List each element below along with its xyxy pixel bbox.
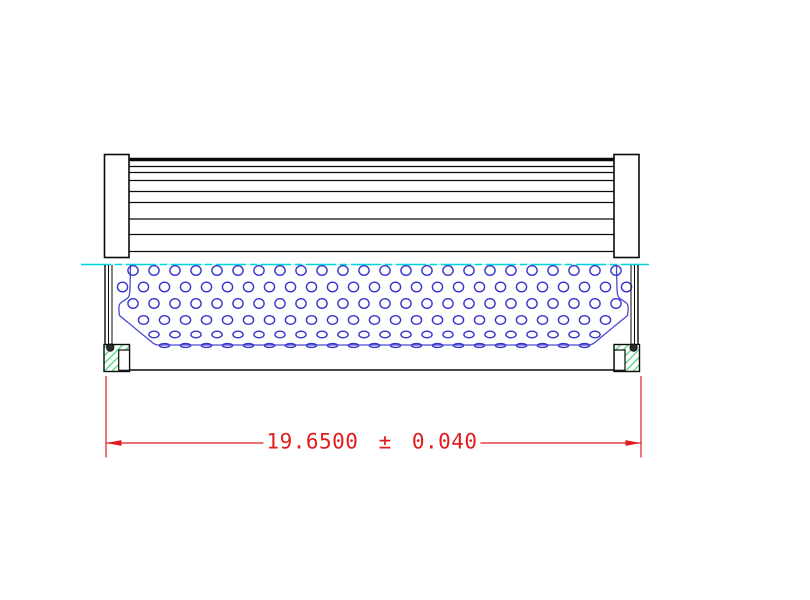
perforation-hole bbox=[149, 331, 159, 338]
perforation-hole bbox=[285, 282, 295, 292]
perforation-hole bbox=[380, 331, 390, 338]
perforation-hole bbox=[359, 266, 369, 276]
perforation-hole bbox=[432, 316, 442, 325]
perforation-hole bbox=[338, 331, 348, 338]
perforation-hole bbox=[411, 282, 421, 292]
perforation-hole bbox=[191, 266, 201, 276]
perforation-hole bbox=[128, 266, 138, 276]
perforation-hole bbox=[317, 266, 327, 276]
perforation-hole bbox=[317, 299, 327, 309]
perforation-hole bbox=[254, 299, 264, 309]
perforation-hole bbox=[569, 299, 579, 309]
filter-element-drawing bbox=[0, 0, 810, 600]
perforation-hole bbox=[170, 331, 180, 338]
perforation-hole bbox=[317, 331, 327, 338]
perforation-hole bbox=[180, 316, 190, 325]
perforation-hole bbox=[212, 266, 222, 276]
perforation-hole bbox=[296, 299, 306, 309]
perforation-hole bbox=[558, 316, 568, 325]
perforation-hole bbox=[590, 299, 600, 309]
perforation-hole bbox=[348, 282, 358, 292]
perforation-hole bbox=[212, 299, 222, 309]
perforation-hole bbox=[191, 331, 201, 338]
perforation-hole bbox=[275, 299, 285, 309]
perforation-hole bbox=[401, 299, 411, 309]
perforation-hole bbox=[621, 282, 631, 292]
perforation-hole bbox=[516, 282, 526, 292]
perforation-hole bbox=[264, 282, 274, 292]
perforation-hole bbox=[390, 316, 400, 325]
perforation-hole bbox=[222, 316, 232, 325]
perforation-hole bbox=[254, 331, 264, 338]
perforation-hole bbox=[579, 282, 589, 292]
perforation-hole bbox=[159, 282, 169, 292]
perforation-hole bbox=[138, 282, 148, 292]
perforation-hole bbox=[422, 299, 432, 309]
perforation-hole bbox=[527, 299, 537, 309]
perforation-hole bbox=[590, 266, 600, 276]
perforation-hole bbox=[443, 299, 453, 309]
perforation-hole bbox=[233, 331, 243, 338]
perforation-hole bbox=[191, 299, 201, 309]
perforation-hole bbox=[516, 316, 526, 325]
perforation-hole bbox=[558, 282, 568, 292]
perforation-hole bbox=[138, 316, 148, 325]
perforation-hole bbox=[611, 299, 621, 309]
perforation-hole bbox=[464, 299, 474, 309]
perforation-hole bbox=[506, 331, 516, 338]
perforation-hole bbox=[212, 331, 222, 338]
perforation-hole bbox=[579, 316, 589, 325]
perforation-hole bbox=[359, 331, 369, 338]
right-end-cap bbox=[614, 155, 639, 258]
perforation-hole bbox=[474, 282, 484, 292]
perforation-hole bbox=[243, 316, 253, 325]
perforation-hole bbox=[401, 266, 411, 276]
perforation-hole bbox=[527, 331, 537, 338]
perforation-hole bbox=[600, 316, 610, 325]
perforation-hole bbox=[432, 282, 442, 292]
perforation-hole bbox=[306, 282, 316, 292]
perforation-hole bbox=[233, 266, 243, 276]
perforation-hole bbox=[201, 316, 211, 325]
perforation-hole bbox=[201, 282, 211, 292]
perforation-hole bbox=[296, 331, 306, 338]
perforation-hole bbox=[327, 316, 337, 325]
perforation-hole bbox=[443, 331, 453, 338]
perforation-hole bbox=[149, 266, 159, 276]
perforation-hole bbox=[170, 299, 180, 309]
perforation-hole bbox=[296, 266, 306, 276]
perforation-hole bbox=[327, 282, 337, 292]
perforation-hole bbox=[233, 299, 243, 309]
left-oring bbox=[107, 344, 114, 351]
perforation-hole bbox=[485, 331, 495, 338]
perforation-hole bbox=[464, 331, 474, 338]
perforation-hole bbox=[149, 299, 159, 309]
perforation-hole bbox=[600, 282, 610, 292]
perforation-hole bbox=[369, 316, 379, 325]
perforation-hole bbox=[285, 316, 295, 325]
perforation-hole bbox=[117, 282, 127, 292]
perforation-hole bbox=[128, 299, 138, 309]
perforation-hole bbox=[569, 331, 579, 338]
perforation-hole bbox=[548, 299, 558, 309]
perforation-hole bbox=[275, 266, 285, 276]
perforation-hole bbox=[380, 299, 390, 309]
left-seal-notch bbox=[119, 350, 130, 370]
perforation-hole bbox=[348, 316, 358, 325]
drawing-canvas: 19.6500 ± 0.040 bbox=[0, 0, 810, 600]
perforation-hole bbox=[359, 299, 369, 309]
perforation-hole bbox=[422, 331, 432, 338]
perforation-hole bbox=[170, 266, 180, 276]
perforation-hole bbox=[527, 266, 537, 276]
perforation-hole bbox=[495, 316, 505, 325]
perforation-hole bbox=[548, 331, 558, 338]
left-end-cap bbox=[105, 155, 130, 258]
perforation-hole bbox=[506, 266, 516, 276]
perforation-hole bbox=[537, 282, 547, 292]
perforation-hole bbox=[422, 266, 432, 276]
perforation-hole bbox=[453, 316, 463, 325]
perforation-hole bbox=[338, 266, 348, 276]
perforation-hole bbox=[159, 316, 169, 325]
perforation-hole bbox=[401, 331, 411, 338]
perforation-hole bbox=[306, 316, 316, 325]
perforation-hole bbox=[537, 316, 547, 325]
core-tube-outline bbox=[119, 265, 628, 345]
perforation-hole bbox=[338, 299, 348, 309]
left-arrowhead bbox=[106, 440, 122, 446]
perforation-hole bbox=[506, 299, 516, 309]
perforation-hole bbox=[548, 266, 558, 276]
right-seal-notch bbox=[614, 350, 625, 370]
perforation-hole bbox=[443, 266, 453, 276]
perforation-hole bbox=[495, 282, 505, 292]
perforation-hole bbox=[254, 266, 264, 276]
perforation-hole bbox=[380, 266, 390, 276]
perforation-hole bbox=[390, 282, 400, 292]
perforation-hole bbox=[180, 282, 190, 292]
right-arrowhead bbox=[626, 440, 642, 446]
perforation-hole bbox=[411, 316, 421, 325]
perforation-hole bbox=[275, 331, 285, 338]
perforation-hole bbox=[264, 316, 274, 325]
perforation-hole bbox=[464, 266, 474, 276]
perforation-hole bbox=[222, 282, 232, 292]
right-oring bbox=[630, 344, 637, 351]
perforation-hole bbox=[485, 299, 495, 309]
perforation-hole bbox=[369, 282, 379, 292]
perforation-hole bbox=[453, 282, 463, 292]
perforation-hole bbox=[590, 331, 600, 338]
perforation-hole bbox=[474, 316, 484, 325]
dimension-text: 19.6500 ± 0.040 bbox=[263, 432, 480, 453]
perforation-hole bbox=[569, 266, 579, 276]
perforation-hole bbox=[243, 282, 253, 292]
perforation-hole bbox=[485, 266, 495, 276]
